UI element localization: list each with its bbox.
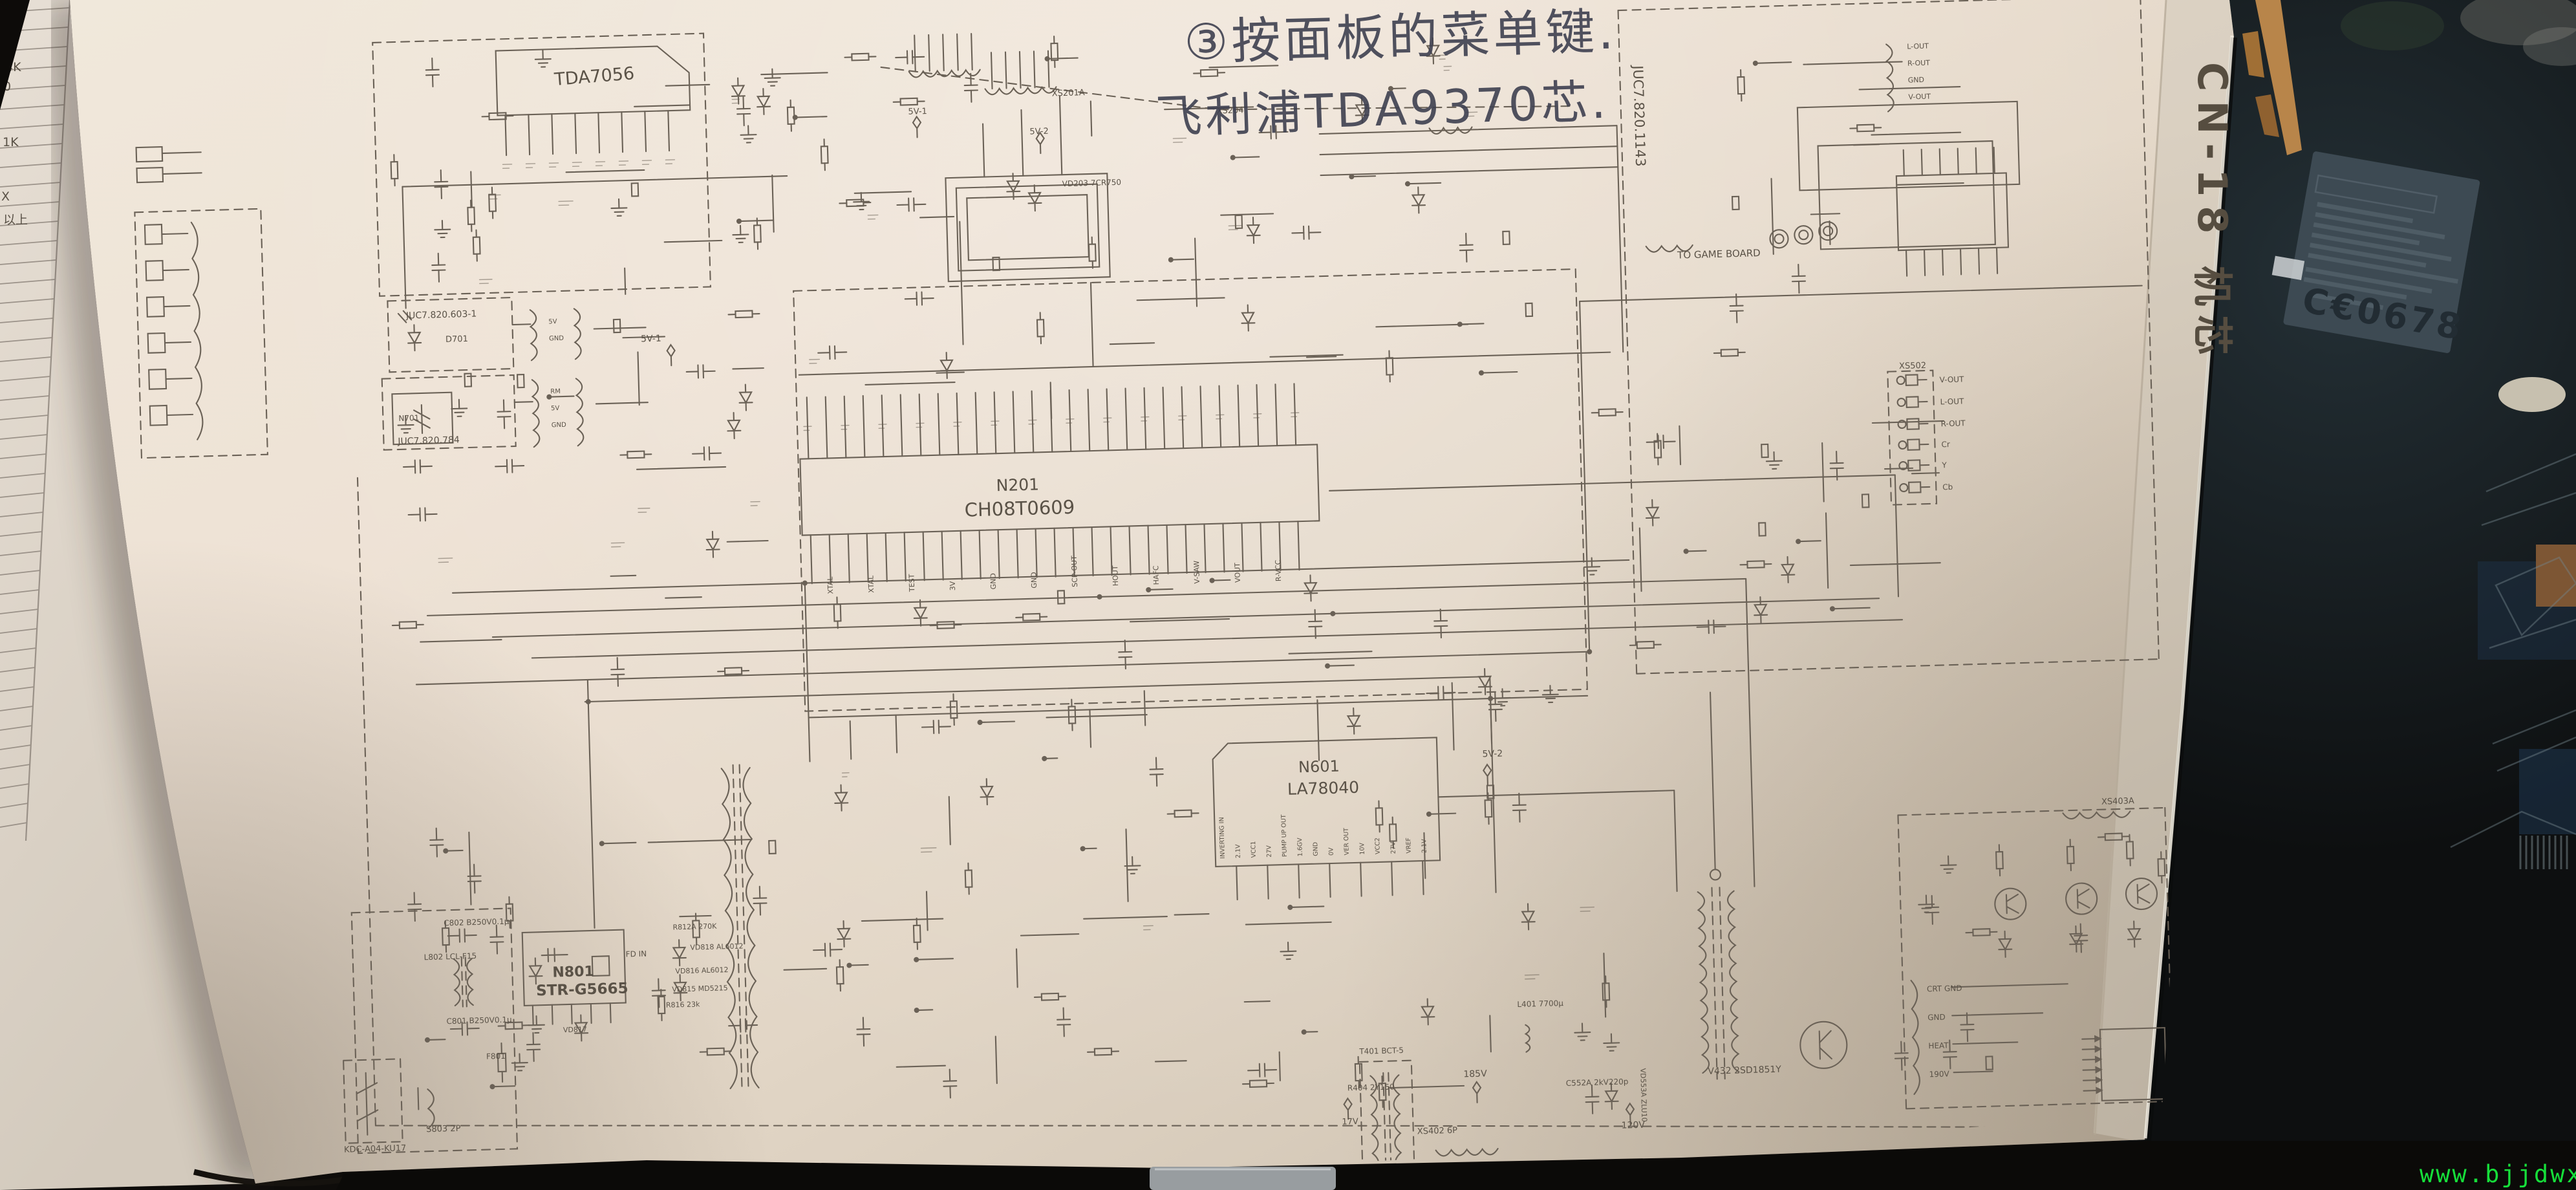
svg-text:GND: GND (1927, 1013, 1946, 1022)
svg-text:VREF: VREF (1405, 838, 1413, 854)
remote-ic-ref: N701 (398, 413, 419, 423)
svg-text:27V: 27V (1265, 845, 1273, 857)
photo-canvas: C€0678 ∞∞04K01KX以上 (0, 0, 2576, 1190)
tan-object (2536, 545, 2576, 607)
vd553-ref: VD553A ZLU10 (1638, 1068, 1648, 1122)
svg-text:TEST: TEST (907, 574, 916, 592)
r812-ref: R812A 270K (672, 922, 717, 932)
svg-text:PUMP UP OUT: PUMP UP OUT (1280, 814, 1289, 857)
svg-text:2.1V: 2.1V (1234, 844, 1242, 858)
vert-ic-part: LA78040 (1287, 778, 1360, 799)
svg-text:VOUT: VOUT (1233, 563, 1242, 583)
round-sticker (2498, 377, 2566, 412)
svg-text:1K: 1K (3, 135, 19, 149)
svg-text:V-OUT: V-OUT (1908, 92, 1931, 102)
svg-text:GND: GND (1029, 572, 1038, 589)
svg-text:VER OUT: VER OUT (1343, 828, 1351, 856)
cap-c802: C802 B250V0.1μ (444, 917, 510, 928)
svg-text:V-SAW: V-SAW (1192, 560, 1201, 583)
v5-1b: 5V-1 (641, 334, 661, 345)
vd815-ref: VD815 MD5215 (672, 984, 728, 993)
v17: 17V (1342, 1117, 1358, 1127)
conn-xs403: XS403A (2101, 796, 2134, 806)
svg-text:3V: 3V (949, 581, 957, 590)
t401-ref: T401 BCT-5 (1358, 1046, 1404, 1056)
svg-text:190V: 190V (1929, 1069, 1949, 1079)
led-ref: D701 (445, 334, 468, 345)
svg-text:HEAT: HEAT (1928, 1041, 1949, 1050)
svg-text:R-OUT: R-OUT (1940, 418, 1966, 428)
c552-ref: C552A 2kV220p (1566, 1077, 1629, 1088)
r404-ref: R404 2Y150 (1347, 1082, 1395, 1092)
v5-2a: 5V-2 (1029, 127, 1049, 137)
watermark: www.bjjdwx.com (2420, 1160, 2576, 1188)
svg-text:Y: Y (1941, 460, 1947, 470)
blur-blob (2341, 1, 2444, 50)
svg-text:GND: GND (1908, 76, 1925, 85)
svg-text:X: X (1, 189, 10, 204)
svg-text:R-VCC: R-VCC (1274, 559, 1283, 581)
svg-text:GND: GND (549, 335, 564, 343)
v5-2b: 5V-2 (1482, 749, 1503, 760)
svg-text:以上: 以上 (3, 213, 28, 227)
vd816-ref: VD816 AL6012 (675, 966, 728, 975)
svg-text:L-OUT: L-OUT (1907, 42, 1929, 51)
svg-text:XTAL: XTAL (826, 576, 835, 594)
cap-c801: C801 B250V0.1μ (446, 1015, 512, 1026)
svg-text:27V: 27V (1390, 841, 1397, 854)
to-game-board: TO GAME BOARD (1677, 247, 1761, 261)
vert-ic-ref: N601 (1298, 757, 1340, 777)
svg-text:V-OUT: V-OUT (1939, 374, 1964, 384)
l401-ref: L401 7700μ (1517, 999, 1563, 1009)
board-code: JUC7.820.1143 (1630, 64, 1648, 167)
svg-text:L-OUT: L-OUT (1940, 396, 1964, 406)
svg-text:CRT GND: CRT GND (1927, 984, 1962, 994)
svg-text:INVERTING IN: INVERTING IN (1218, 817, 1227, 859)
switch-part: KDC-A04-KU17 (344, 1143, 407, 1155)
svg-text:XTAL: XTAL (866, 575, 875, 593)
svg-text:VCC1: VCC1 (1250, 841, 1258, 858)
chassis-margin-label: CN-18 机芯 (2189, 62, 2236, 364)
svg-text:HAFC: HAFC (1152, 565, 1161, 585)
pcb-blue-area (2519, 749, 2576, 834)
hout-tr-ref: V432 2SD1851Y (1708, 1065, 1781, 1077)
svg-text:Cb: Cb (1942, 482, 1953, 492)
psu-ic-part: STR-G5665 (536, 980, 628, 999)
handwriting-line1: ③按面板的菜单键. (1183, 3, 1617, 71)
schematic-photo-scene: C€0678 ∞∞04K01KX以上 (0, 0, 2576, 1190)
remote-board-code: JUC7.820.784 (397, 435, 460, 447)
svg-text:R-OUT: R-OUT (1907, 59, 1931, 68)
svg-text:VCC2: VCC2 (1374, 838, 1382, 854)
svg-text:2.1V: 2.1V (1421, 839, 1428, 853)
vd818-ref: VD818 AL6012 (690, 942, 743, 951)
svg-text:RM: RM (550, 388, 561, 395)
keypad-part: VD203 7CR750 (1062, 178, 1121, 189)
svg-text:5V: 5V (551, 405, 560, 412)
vd817-ref: VD817 (563, 1025, 587, 1034)
v185: 185V (1463, 1068, 1487, 1079)
main-ic-ref: N201 (996, 475, 1039, 495)
v5-1a: 5V-1 (908, 107, 927, 117)
main-ic-part: CH08T0609 (964, 496, 1075, 521)
svg-text:GND: GND (1312, 842, 1320, 856)
svg-text:SCP-OUT: SCP-OUT (1070, 556, 1079, 587)
svg-text:1.6GV: 1.6GV (1296, 838, 1304, 857)
led-board-code: JUC7.820.603-1 (405, 309, 477, 321)
svg-text:5V: 5V (548, 318, 557, 325)
svg-text:0V: 0V (1327, 847, 1335, 856)
r816-ref: R816 23k (666, 1000, 700, 1009)
psu-fdin: FD IN (625, 949, 647, 959)
svg-text:GND: GND (552, 422, 567, 429)
line-filter: L802 LCL-F15 (424, 951, 477, 962)
conn-xs201a: XS201A (1052, 88, 1085, 98)
svg-text:Cr: Cr (1941, 440, 1950, 449)
svg-text:GND: GND (989, 573, 998, 590)
svg-text:HOUT: HOUT (1111, 565, 1120, 586)
svg-text:10V: 10V (1358, 842, 1366, 854)
conn-s803: S803 2P (426, 1124, 461, 1134)
fuse-ref: F801 (486, 1052, 506, 1061)
av-jacks-ref: XS502 (1899, 361, 1926, 371)
conn-xs402: XS402 6P (1417, 1126, 1458, 1137)
psu-ic-ref: N801 (552, 964, 594, 981)
